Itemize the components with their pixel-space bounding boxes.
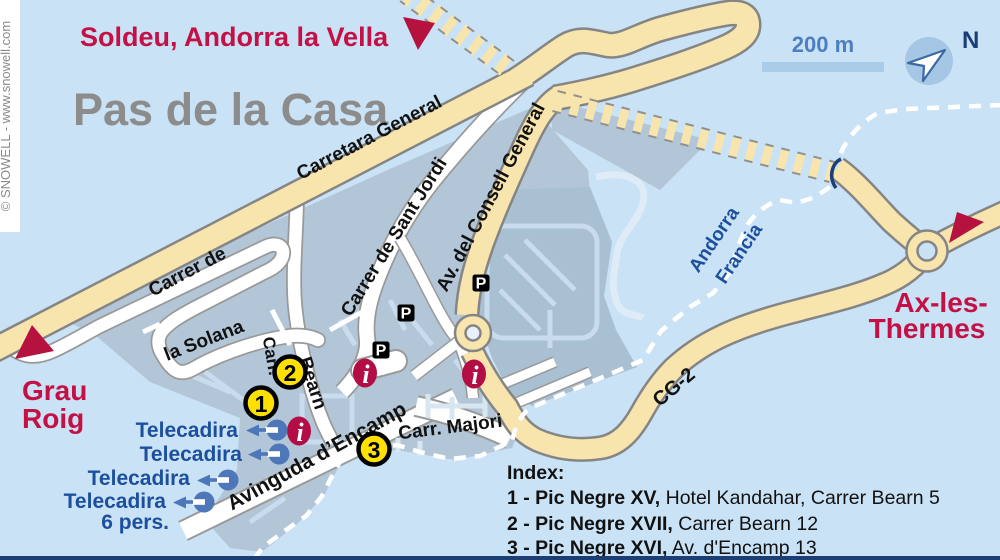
svg-text:Soldeu, Andorra la Vella: Soldeu, Andorra la Vella [80, 22, 389, 52]
svg-text:3 - Pic Negre XVI, Av. d'Encam: 3 - Pic Negre XVI, Av. d'Encamp 13 [507, 537, 817, 559]
svg-text:Telecadira: Telecadira [88, 467, 191, 490]
svg-text:Roig: Roig [22, 403, 84, 434]
svg-text:1: 1 [255, 391, 268, 417]
svg-text:3: 3 [368, 437, 381, 463]
svg-text:i: i [296, 418, 304, 447]
svg-text:Thermes: Thermes [869, 313, 986, 344]
svg-text:i: i [471, 361, 479, 390]
svg-text:Telecadira: Telecadira [136, 419, 239, 442]
svg-text:2: 2 [284, 360, 297, 386]
svg-text:P: P [376, 343, 387, 360]
svg-text:200 m: 200 m [792, 32, 854, 57]
svg-text:P: P [476, 276, 487, 293]
svg-text:Telecadira: Telecadira [64, 490, 167, 513]
svg-text:2 - Pic Negre XVII, Carrer Bea: 2 - Pic Negre XVII, Carrer Bearn 12 [507, 513, 818, 535]
svg-text:i: i [362, 360, 370, 389]
svg-text:1 - Pic Negre XV, Hotel Kandah: 1 - Pic Negre XV, Hotel Kandahar, Carrer… [507, 487, 940, 509]
svg-text:© SNOWELL - www.snowell.com: © SNOWELL - www.snowell.com [0, 21, 13, 211]
svg-text:N: N [962, 27, 979, 54]
svg-text:Index:: Index: [507, 462, 564, 484]
svg-text:P: P [401, 306, 412, 323]
svg-text:Pas de la Casa: Pas de la Casa [73, 84, 389, 135]
svg-text:Telecadira: Telecadira [140, 443, 243, 466]
svg-text:6 pers.: 6 pers. [101, 511, 169, 534]
svg-text:Grau: Grau [22, 375, 87, 406]
